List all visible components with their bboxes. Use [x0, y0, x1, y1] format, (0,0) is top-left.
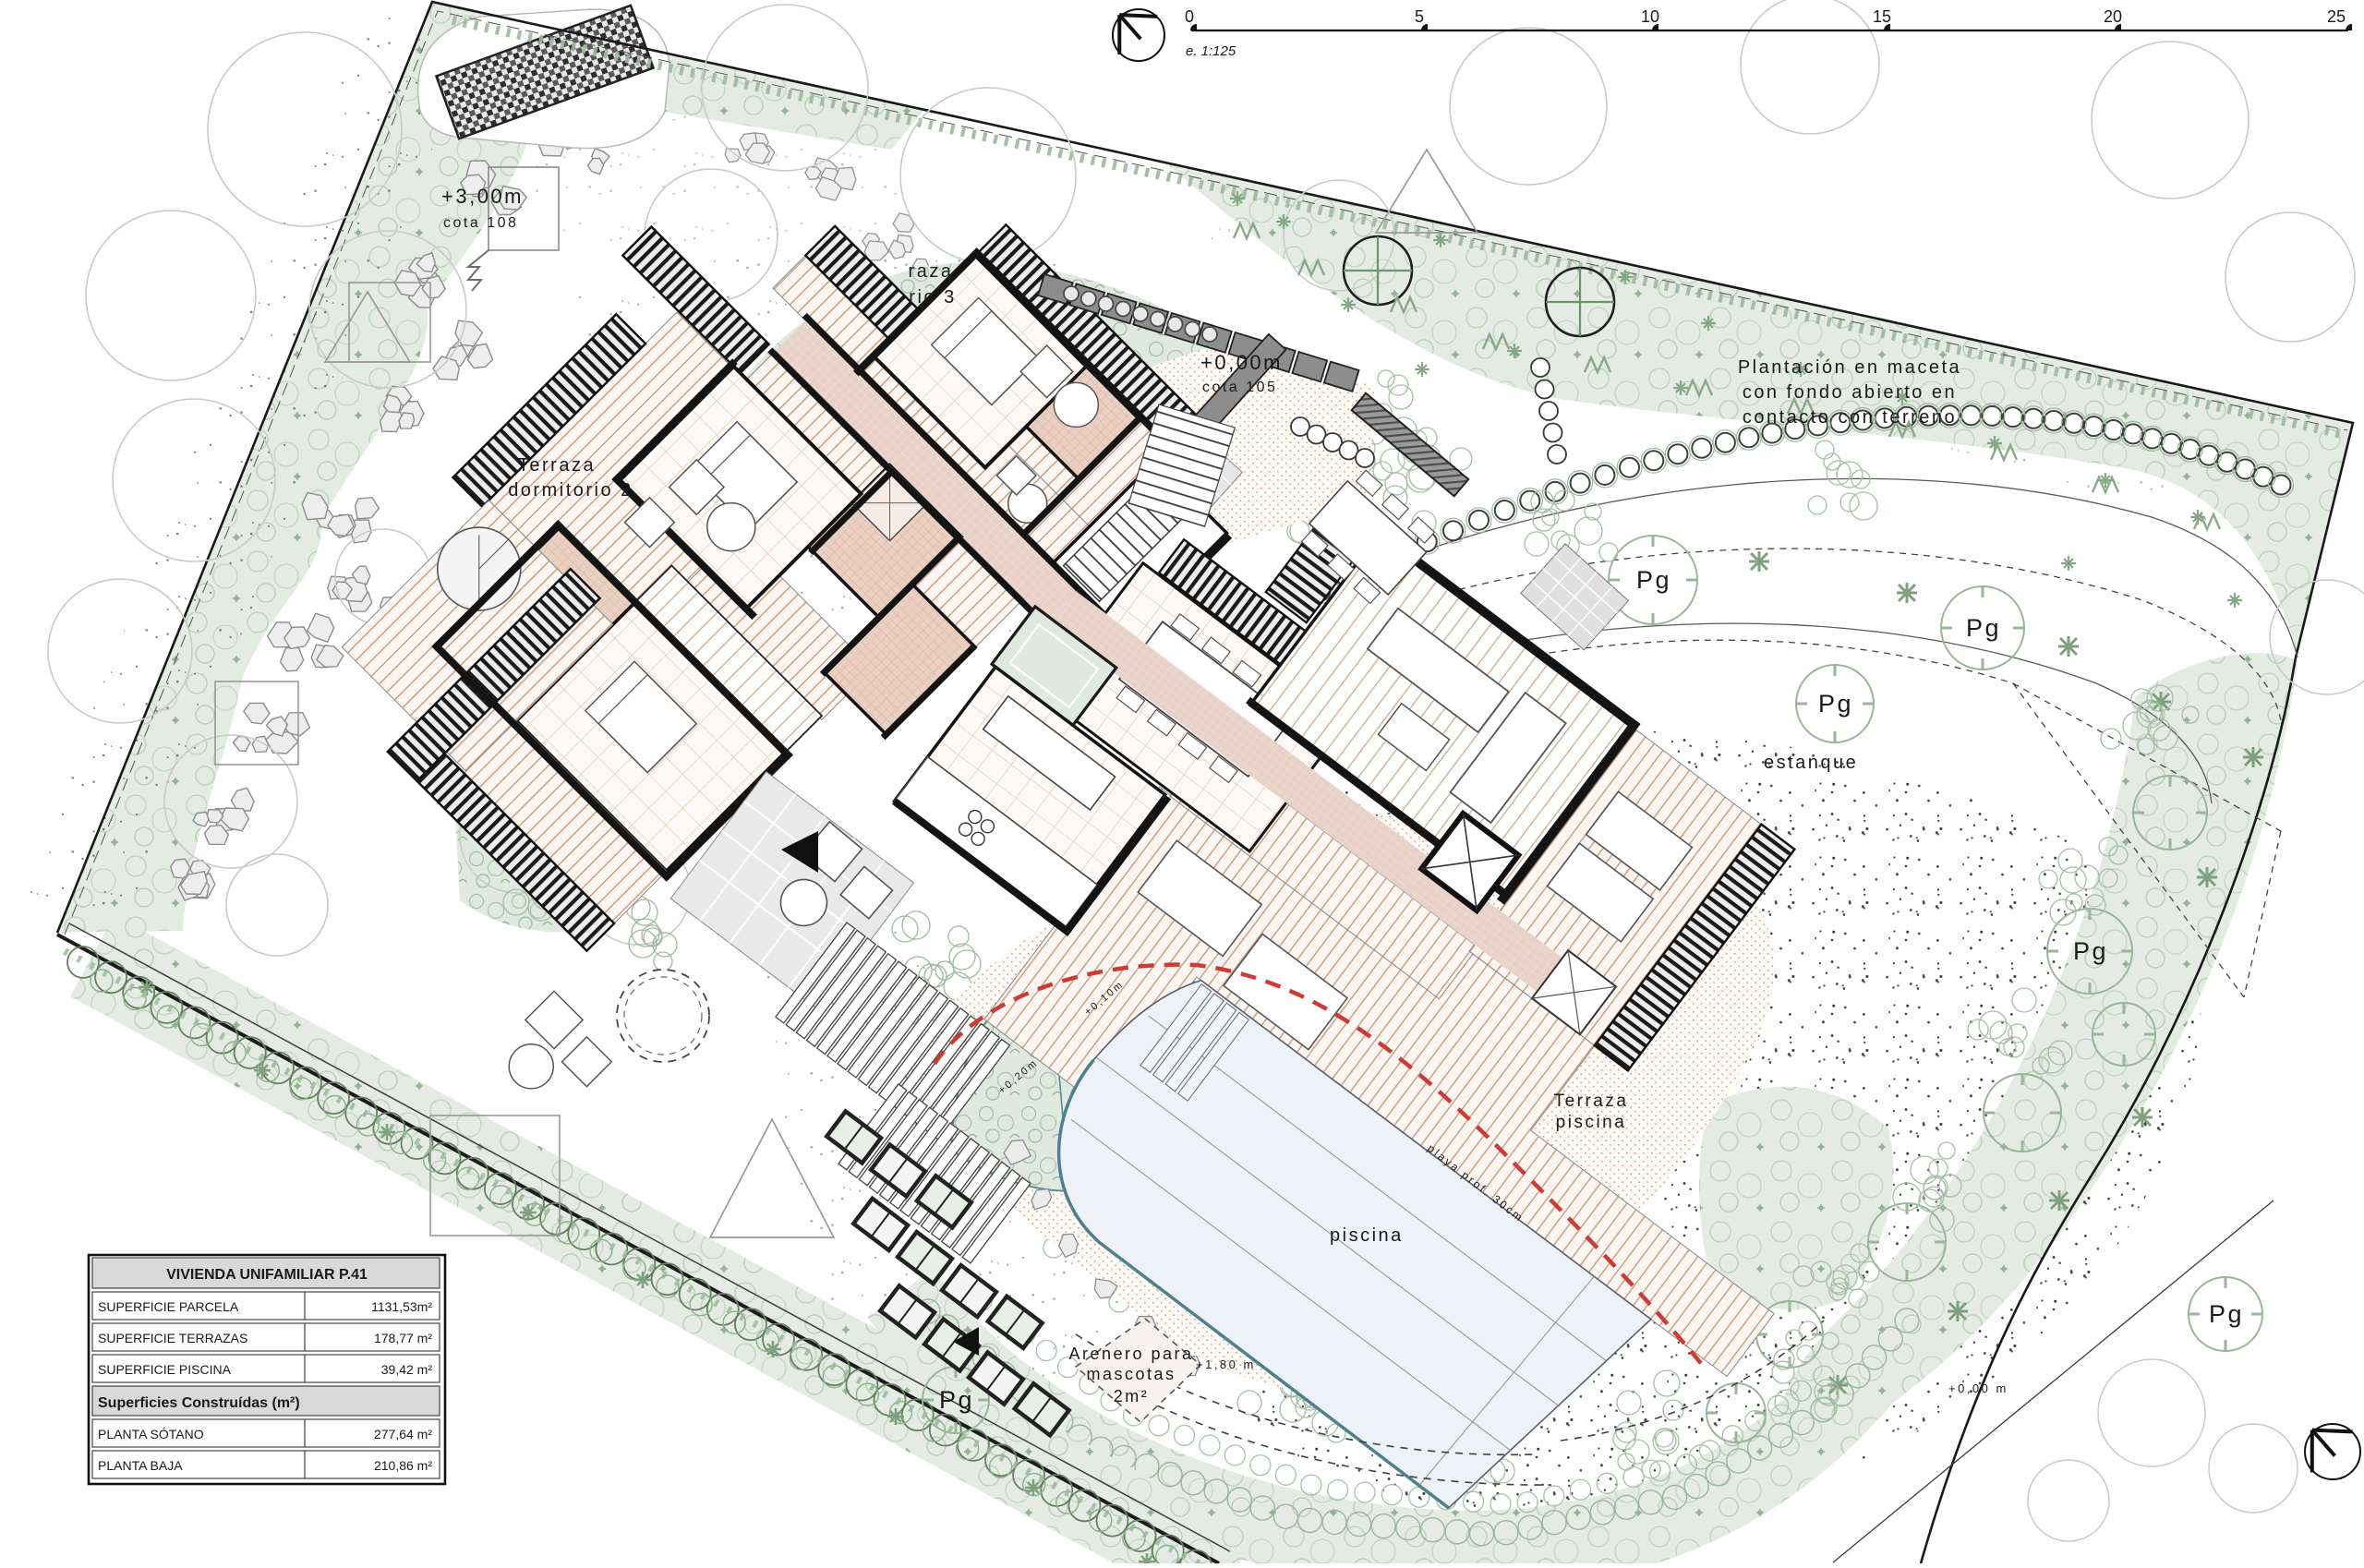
svg-text:piscina: piscina [1330, 1225, 1404, 1246]
svg-text:estanque: estanque [1764, 753, 1858, 773]
svg-text:Pg: Pg [2209, 1300, 2244, 1328]
svg-text:Pg: Pg [2073, 937, 2108, 965]
svg-text:rio 3: rio 3 [909, 287, 956, 308]
svg-text:1131,53m²: 1131,53m² [371, 1299, 432, 1314]
svg-text:15: 15 [1873, 7, 1891, 26]
svg-text:Pg: Pg [1636, 566, 1671, 594]
svg-text:SUPERFICIE TERRAZAS: SUPERFICIE TERRAZAS [98, 1331, 247, 1345]
svg-text:+3,00m: +3,00m [441, 185, 524, 208]
svg-text:piscina: piscina [1556, 1113, 1627, 1132]
svg-text:25: 25 [2327, 7, 2346, 26]
svg-text:Plantación en maceta: Plantación en maceta [1738, 357, 1961, 378]
svg-text:+1,80 m: +1,80 m [1196, 1357, 1256, 1371]
svg-text:277,64 m²: 277,64 m² [374, 1427, 432, 1441]
svg-text:SUPERFICIE PARCELA: SUPERFICIE PARCELA [98, 1299, 239, 1314]
svg-text:+0,00 m: +0,00 m [1948, 1381, 2008, 1395]
svg-text:contacto con terreno: contacto con terreno [1743, 407, 1957, 428]
svg-text:con fondo abierto en: con fondo abierto en [1743, 382, 1957, 403]
svg-text:5: 5 [1415, 7, 1424, 26]
svg-text:Pg: Pg [1966, 614, 2001, 642]
svg-text:+0,00m: +0,00m [1200, 351, 1283, 374]
svg-text:39,42 m²: 39,42 m² [381, 1362, 433, 1377]
svg-text:Superficies Construídas (m²): Superficies Construídas (m²) [98, 1395, 300, 1411]
svg-text:210,86 m²: 210,86 m² [374, 1458, 432, 1473]
svg-text:dormitorio 2: dormitorio 2 [508, 480, 633, 501]
svg-text:2m²: 2m² [1114, 1387, 1150, 1405]
svg-text:PLANTA SÓTANO: PLANTA SÓTANO [98, 1427, 204, 1441]
svg-text:0: 0 [1185, 7, 1194, 26]
svg-text:PLANTA BAJA: PLANTA BAJA [98, 1458, 183, 1473]
svg-text:Terraza: Terraza [518, 455, 596, 476]
svg-text:mascotas: mascotas [1086, 1365, 1176, 1383]
svg-text:Terraza: Terraza [1554, 1092, 1629, 1111]
svg-text:raza: raza [909, 261, 954, 282]
svg-text:178,77 m²: 178,77 m² [374, 1331, 432, 1345]
svg-text:20: 20 [2104, 7, 2122, 26]
svg-text:10: 10 [1641, 7, 1659, 26]
svg-text:Arenero para: Arenero para [1068, 1345, 1193, 1363]
svg-text:Pg: Pg [1818, 690, 1853, 718]
svg-text:cota 105: cota 105 [1202, 380, 1277, 395]
svg-text:SUPERFICIE PISCINA: SUPERFICIE PISCINA [98, 1362, 232, 1377]
svg-text:e. 1:125: e. 1:125 [1186, 43, 1236, 59]
svg-text:cota 108: cota 108 [443, 215, 518, 231]
svg-text:VIVIENDA UNIFAMILIAR P.41: VIVIENDA UNIFAMILIAR P.41 [166, 1267, 368, 1283]
svg-text:Pg: Pg [939, 1386, 974, 1414]
